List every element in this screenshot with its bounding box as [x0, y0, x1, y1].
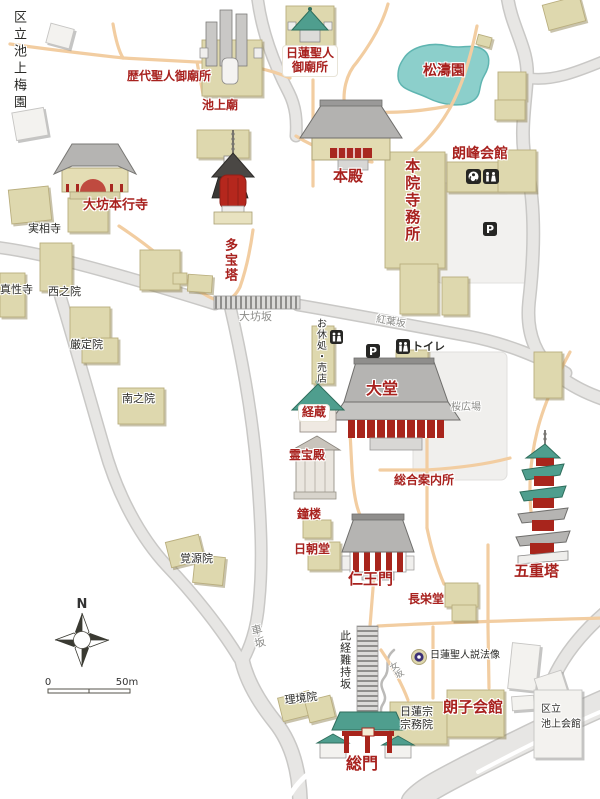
- label-niomon: 仁王門: [348, 571, 393, 588]
- compass-north-label: N: [77, 597, 88, 612]
- statue-icon: [412, 650, 427, 665]
- label-nishinoin: 西之院: [48, 286, 81, 299]
- label-nanjizaka: 此経難持坂: [338, 630, 351, 690]
- building: [173, 273, 187, 284]
- building: [70, 307, 110, 341]
- parking-icon: P: [483, 222, 497, 236]
- label-reihoden: 霊宝殿: [289, 449, 325, 463]
- compass-rose: N: [55, 597, 109, 667]
- building: [534, 352, 562, 398]
- building: [512, 695, 535, 711]
- toilet-icon: [396, 339, 410, 354]
- reihoden-structure: [292, 436, 340, 499]
- label-daibozaka: 大坊坂: [239, 311, 272, 324]
- building: [46, 23, 74, 49]
- label-choeido: 長栄堂: [408, 593, 444, 607]
- label-shoro: 鐘楼: [297, 508, 321, 522]
- building: [476, 34, 492, 47]
- restroom-icon: [330, 330, 343, 344]
- label-ward-plum-garden: 区立池上梅園: [10, 10, 25, 112]
- label-honden: 本殿: [333, 168, 363, 185]
- compass-center: [74, 632, 91, 649]
- label-daido: 大堂: [366, 380, 398, 398]
- label-daibo-hongyoji: 大坊本行寺: [83, 199, 148, 214]
- label-shumuin: 日蓮宗 宗務院: [400, 706, 433, 731]
- building: [8, 186, 51, 224]
- svg-text:P: P: [369, 345, 377, 358]
- label-minaminoin: 南之院: [122, 393, 155, 406]
- svg-text:P: P: [486, 223, 494, 236]
- label-sogo-annaijo: 総合案内所: [394, 474, 454, 488]
- label-shotoen: 松濤園: [423, 63, 465, 79]
- scale-end-label: 50m: [116, 677, 138, 688]
- building: [495, 100, 525, 120]
- basemap-svg: P P: [0, 0, 600, 799]
- building: [187, 274, 212, 293]
- nanjizaka-stairs: [357, 626, 378, 724]
- building: [12, 107, 48, 140]
- accessible-restroom-icon: [466, 169, 481, 184]
- building: [400, 264, 438, 314]
- label-kuritsu-kaikan: 区立 池上会館: [541, 704, 581, 730]
- honden-structure: [300, 100, 402, 170]
- building: [40, 243, 72, 291]
- scale-bar: 0 50m: [45, 677, 138, 693]
- scale-start-label: 0: [45, 677, 51, 688]
- label-shinshoji: 真性寺: [0, 284, 33, 297]
- label-honin-jimusho: 本院寺務所: [403, 158, 420, 243]
- label-somon: 総門: [346, 755, 378, 773]
- daibozaka-stairs: [214, 296, 300, 309]
- label-gonjoin: 厳定院: [70, 339, 103, 352]
- label-kakugenin: 覚源院: [180, 553, 213, 566]
- building: [442, 277, 468, 315]
- gojunoto-pagoda-structure: [516, 430, 570, 564]
- building: [197, 130, 249, 158]
- label-rest-shop: お休処・売店: [314, 318, 326, 384]
- label-nicchodo: 日朝堂: [294, 543, 330, 557]
- label-nichiren-mausoleum: 日蓮聖人 御廟所: [283, 46, 337, 76]
- label-rekidai-mausoleum: 歴代聖人御廟所: [127, 70, 211, 84]
- label-ikegami-byo: 池上廟: [202, 99, 238, 113]
- label-tahoto: 多宝塔: [221, 238, 236, 283]
- restroom-icon: [483, 169, 499, 184]
- parking-icon: P: [366, 344, 380, 358]
- label-toilet: トイレ: [412, 341, 445, 354]
- bell-tower-building: [303, 520, 331, 538]
- label-roho-kaikan: 朗峰会館: [452, 146, 508, 162]
- label-jissoji: 実相寺: [28, 223, 61, 236]
- label-sakura-hiroba: 桜広場: [451, 402, 481, 414]
- building: [498, 72, 526, 100]
- label-roshi-kaikan: 朗子会館: [443, 699, 503, 716]
- choeido-building: [445, 583, 478, 607]
- building: [542, 0, 585, 30]
- label-nichiren-statue: 日蓮聖人説法像: [430, 650, 500, 662]
- label-kyozo: 経蔵: [299, 405, 329, 421]
- building: [452, 605, 476, 621]
- label-gojunoto: 五重塔: [514, 563, 559, 580]
- daibo-hongyoji-structure: [54, 144, 136, 199]
- map-canvas: P P: [0, 0, 600, 799]
- building: [508, 643, 541, 692]
